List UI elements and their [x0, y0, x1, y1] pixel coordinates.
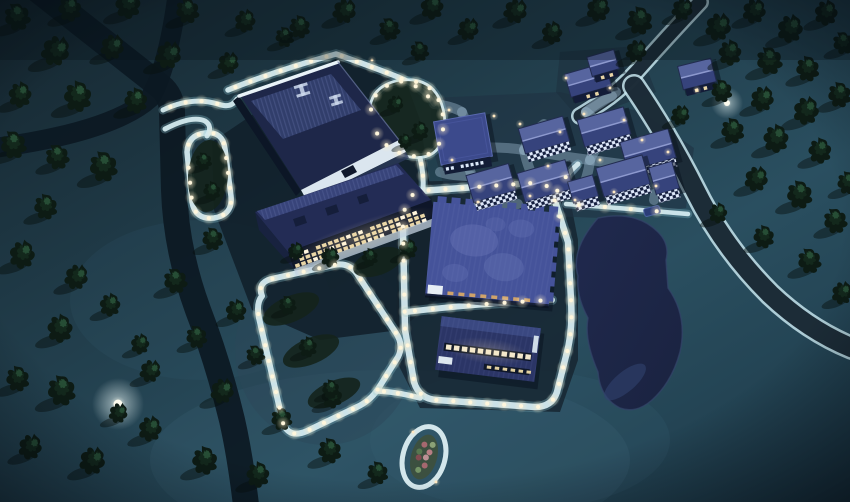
- aerial-night-scene: [0, 0, 850, 502]
- top-shade: [0, 0, 850, 60]
- vignette: [0, 0, 850, 502]
- vignette-layer: [0, 0, 850, 502]
- game-viewport[interactable]: [0, 0, 850, 502]
